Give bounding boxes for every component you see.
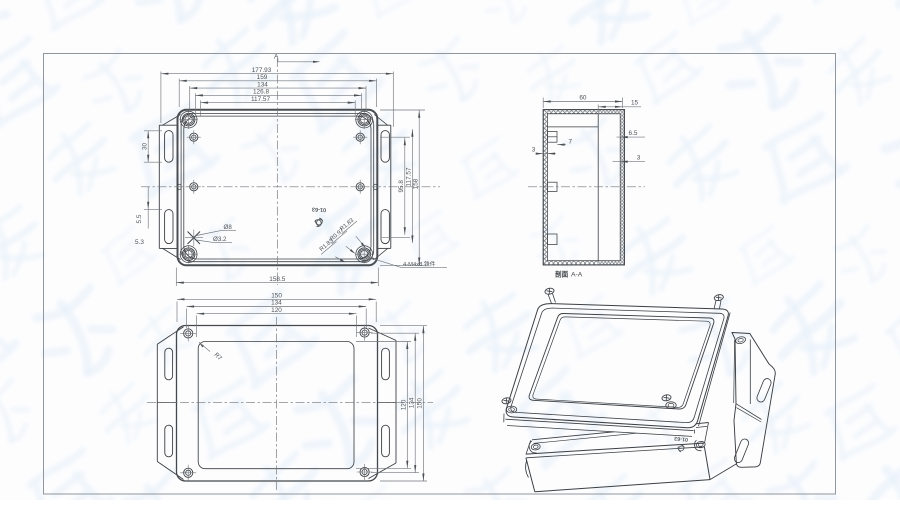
svg-text:7: 7 xyxy=(569,139,573,146)
svg-text:A-A: A-A xyxy=(571,271,583,278)
svg-text:158: 158 xyxy=(412,178,419,189)
svg-text:134: 134 xyxy=(257,81,268,88)
svg-text:5.5: 5.5 xyxy=(136,214,143,223)
svg-text:4-M4x8 铢件: 4-M4x8 铢件 xyxy=(403,260,436,268)
svg-text:134: 134 xyxy=(408,397,415,408)
svg-text:15: 15 xyxy=(631,100,639,107)
svg-text:01-63: 01-63 xyxy=(312,206,327,213)
svg-text:5.3: 5.3 xyxy=(135,239,144,246)
svg-text:120: 120 xyxy=(401,399,408,410)
svg-text:150: 150 xyxy=(271,293,282,300)
svg-text:剖面: 剖面 xyxy=(555,269,569,278)
svg-text:158.5: 158.5 xyxy=(269,276,285,283)
svg-text:126.8: 126.8 xyxy=(253,89,269,96)
svg-text:A: A xyxy=(274,54,279,61)
svg-text:6.5: 6.5 xyxy=(629,130,638,137)
svg-text:60: 60 xyxy=(579,95,587,102)
svg-text:01-63: 01-63 xyxy=(674,435,688,442)
svg-text:159: 159 xyxy=(257,74,268,81)
svg-text:117.57: 117.57 xyxy=(251,96,271,103)
svg-text:177.93: 177.93 xyxy=(252,67,272,74)
svg-text:3: 3 xyxy=(532,147,536,154)
svg-text:30: 30 xyxy=(141,143,148,151)
svg-text:134: 134 xyxy=(271,300,282,307)
svg-text:95.8: 95.8 xyxy=(398,180,405,193)
svg-text:150: 150 xyxy=(417,398,424,409)
svg-text:3: 3 xyxy=(637,154,641,161)
svg-text:Ø3.2: Ø3.2 xyxy=(213,236,227,243)
svg-text:Ø8: Ø8 xyxy=(224,224,233,231)
svg-text:120: 120 xyxy=(271,307,282,314)
